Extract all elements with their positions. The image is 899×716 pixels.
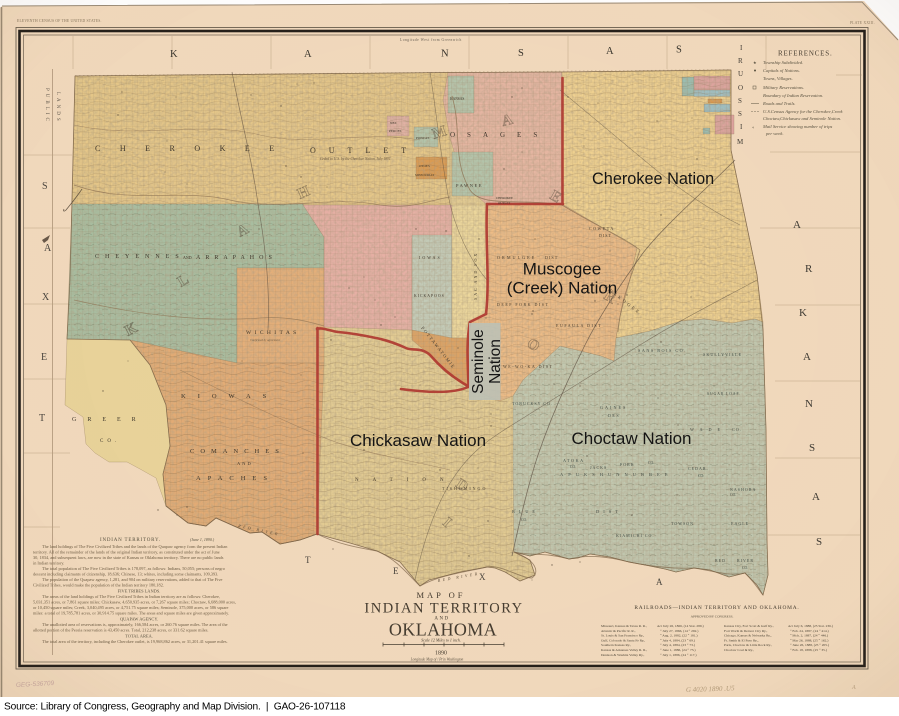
svg-text:Source: Library of Congress, G: Source: Library of Congress, Geography a…	[4, 702, 346, 713]
